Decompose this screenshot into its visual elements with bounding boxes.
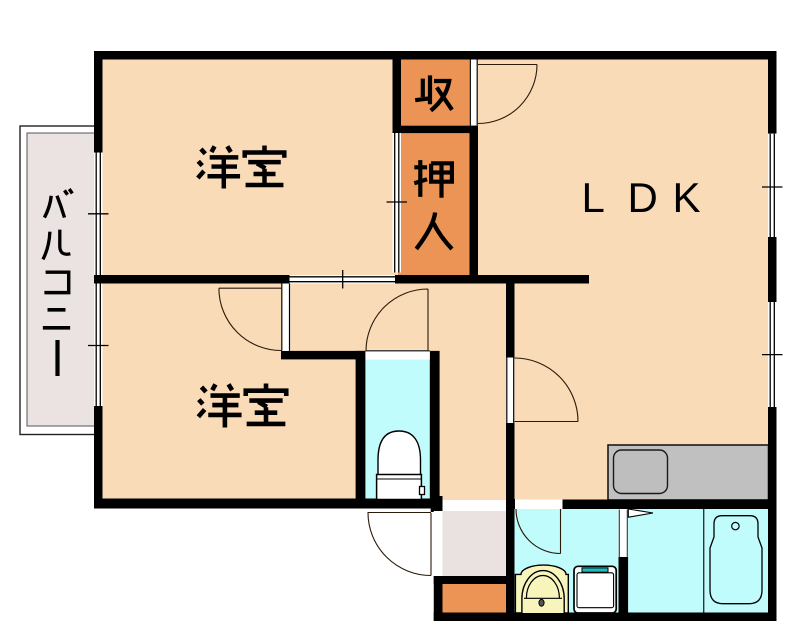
- svg-text:K: K: [673, 174, 701, 221]
- svg-text:D: D: [628, 174, 658, 221]
- svg-text:L: L: [582, 174, 605, 221]
